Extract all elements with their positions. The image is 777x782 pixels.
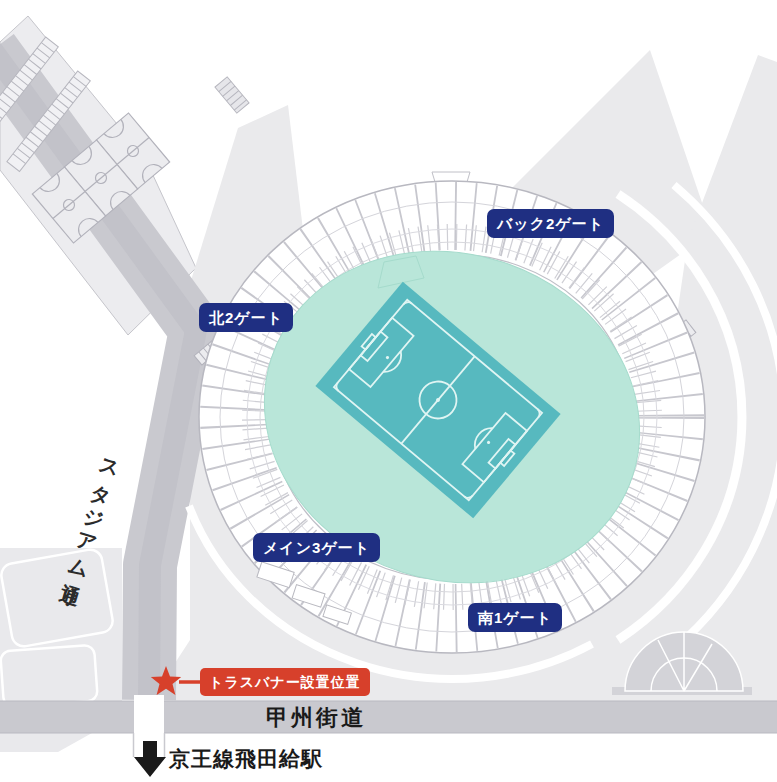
koshu-kaido-road [0, 701, 777, 733]
gate-badge-south-1: 南1ゲート [468, 603, 562, 632]
gate-badge-back-2: バック2ゲート [487, 209, 614, 238]
stadium-map-graphic [0, 0, 777, 782]
truss-banner-label: トラスバナー設置位置 [200, 668, 370, 696]
gate-badge-north-2: 北2ゲート [199, 303, 293, 332]
stadium-area-map: バック2ゲート 北2ゲート メイン3ゲート 南1ゲート トラスバナー設置位置 ス… [0, 0, 777, 782]
gate-badge-main-3: メイン3ゲート [253, 533, 380, 562]
koshu-kaido-label: 甲州街道 [266, 703, 366, 733]
station-label: 京王線飛田給駅 [169, 745, 323, 773]
